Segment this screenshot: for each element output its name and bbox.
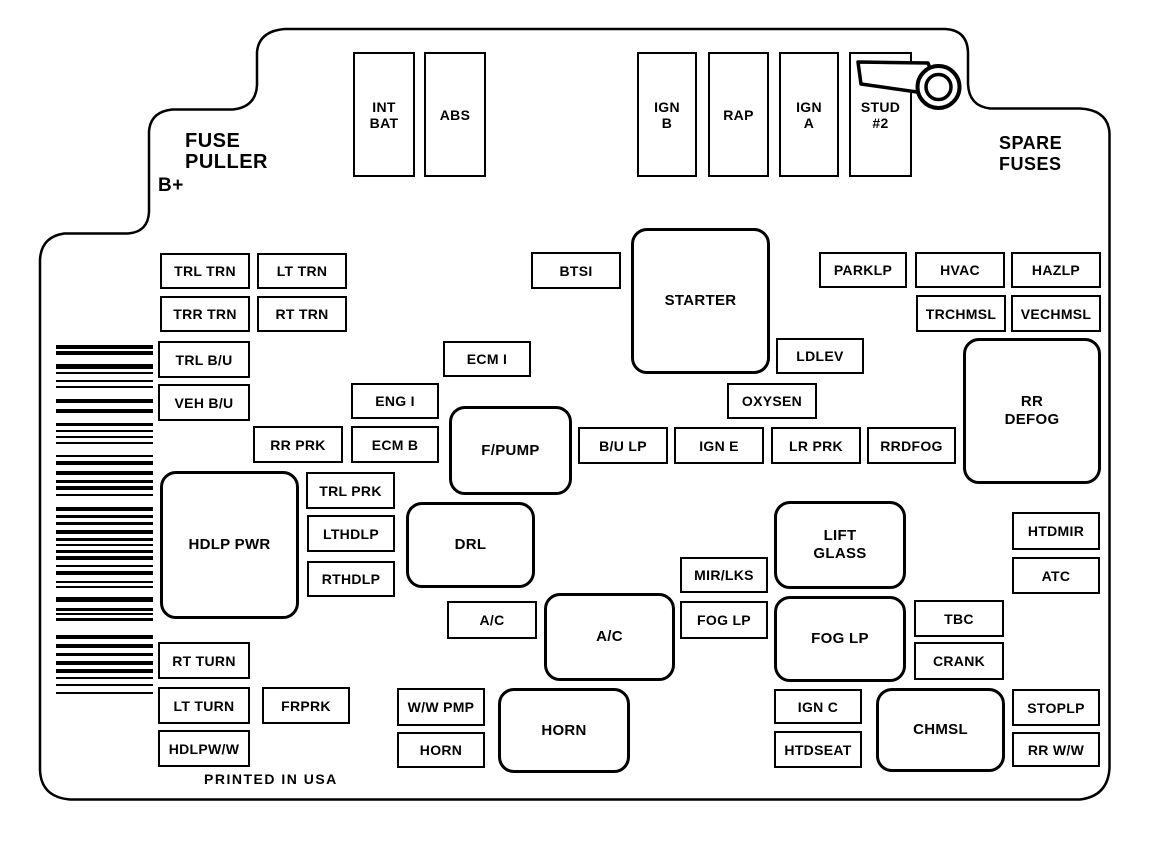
spare-fuses-line1: SPARE [999,133,1062,154]
fuse-ign-e: IGN E [674,427,764,464]
fuse-eng-i: ENG I [351,383,439,419]
fuse-rt-trn: RT TRN [257,296,347,332]
fuse-ign-b: IGN B [637,52,697,177]
fuse-rt-turn: RT TURN [158,642,250,679]
fuse-atc: ATC [1012,557,1100,594]
fuse-stud-2: STUD #2 [849,52,912,177]
fuse-rap: RAP [708,52,769,177]
fuse-rr-ww: RR W/W [1012,732,1100,767]
fuse-box-diagram: INT BATABSIGN BRAPIGN ASTUD #2TRL TRNLT … [0,0,1173,841]
fuse-int-bat: INT BAT [353,52,415,177]
fuse-chmsl: CHMSL [876,688,1005,772]
fuse-hdlpww: HDLPW/W [158,730,250,767]
fuse-hvac: HVAC [915,252,1005,288]
fuse-f-pump: F/PUMP [449,406,572,495]
fuse-htdmir: HTDMIR [1012,512,1100,550]
fuse-lt-trn: LT TRN [257,253,347,289]
fuse-rr-prk: RR PRK [253,426,343,463]
fuse-horn-big: HORN [498,688,630,773]
fuse-trl-trn: TRL TRN [160,253,250,289]
fuse-vechmsl: VECHMSL [1011,295,1101,332]
fuse-bu-lp: B/U LP [578,427,668,464]
fuse-parklp: PARKLP [819,252,907,288]
fuse-trr-trn: TRR TRN [160,296,250,332]
fuse-fog-lp-big: FOG LP [774,596,906,682]
fuse-puller-label: FUSE PULLER [185,131,268,173]
fuse-trl-bu: TRL B/U [158,341,250,378]
fuse-lthdlp: LTHDLP [307,515,395,552]
fuse-veh-bu: VEH B/U [158,384,250,421]
fuse-mir-lks: MIR/LKS [680,557,768,593]
fuse-ww-pmp: W/W PMP [397,688,485,726]
fuse-trl-prk: TRL PRK [306,472,395,509]
fuse-stoplp: STOPLP [1012,689,1100,726]
fuse-frprk: FRPRK [262,687,350,724]
fuse-hazlp: HAZLP [1011,252,1101,288]
printed-in-usa-label: PRINTED IN USA [204,771,338,787]
fuse-ac-small: A/C [447,601,537,639]
fuse-oxysen: OXYSEN [727,383,817,419]
fuse-lr-prk: LR PRK [771,427,861,464]
fuse-rr-defog: RR DEFOG [963,338,1101,484]
fuse-lt-turn: LT TURN [158,687,250,724]
fuse-ign-c: IGN C [774,689,862,724]
fuse-rrdfog: RRDFOG [867,427,956,464]
fuse-ac-big: A/C [544,593,675,681]
fuse-puller-line2: PULLER [185,152,268,173]
fuse-ecm-b: ECM B [351,426,439,463]
fuse-puller-line1: FUSE [185,131,268,152]
fuse-ecm-i: ECM I [443,341,531,377]
fuse-horn-small: HORN [397,732,485,768]
fuse-htdseat: HTDSEAT [774,731,862,768]
fuse-lift-glass: LIFT GLASS [774,501,906,589]
fuse-trchmsl: TRCHMSL [916,295,1006,332]
fuse-layer: INT BATABSIGN BRAPIGN ASTUD #2TRL TRNLT … [0,0,1173,841]
fuse-ign-a: IGN A [779,52,839,177]
fuse-ldlev: LDLEV [776,338,864,374]
b-plus-label: B+ [158,175,184,197]
fuse-btsi: BTSI [531,252,621,289]
fuse-hdlp-pwr: HDLP PWR [160,471,299,619]
fuse-drl: DRL [406,502,535,588]
fuse-crank: CRANK [914,642,1004,680]
fuse-starter: STARTER [631,228,770,374]
fuse-tbc: TBC [914,600,1004,637]
fuse-rthdlp: RTHDLP [307,561,395,597]
spare-fuses-line2: FUSES [999,154,1062,175]
fuse-fog-lp-small: FOG LP [680,601,768,639]
spare-fuses-label: SPARE FUSES [999,133,1062,175]
fuse-abs: ABS [424,52,486,177]
